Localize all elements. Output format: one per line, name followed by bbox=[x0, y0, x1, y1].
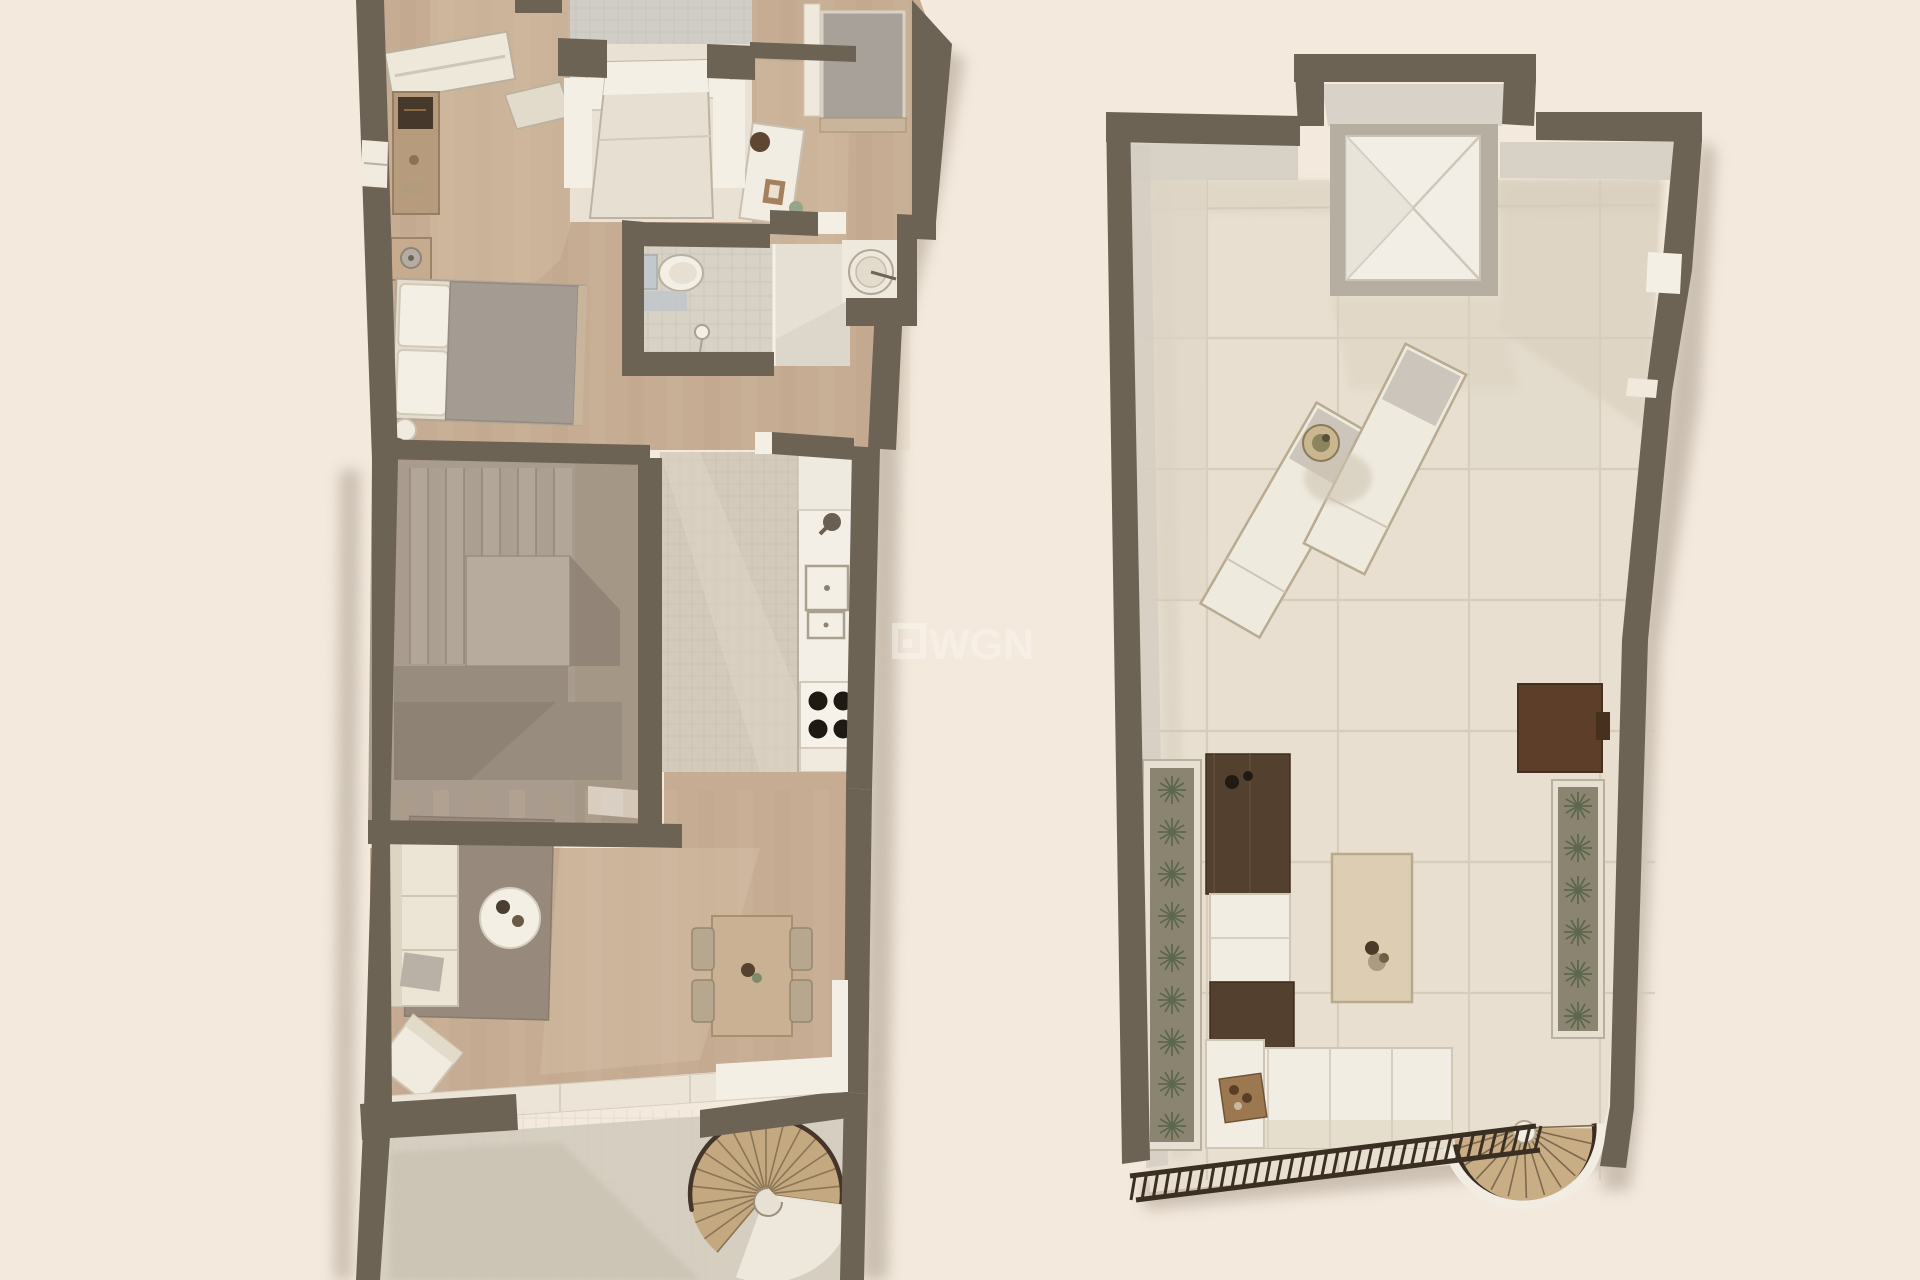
svg-text:WGN: WGN bbox=[929, 621, 1034, 669]
